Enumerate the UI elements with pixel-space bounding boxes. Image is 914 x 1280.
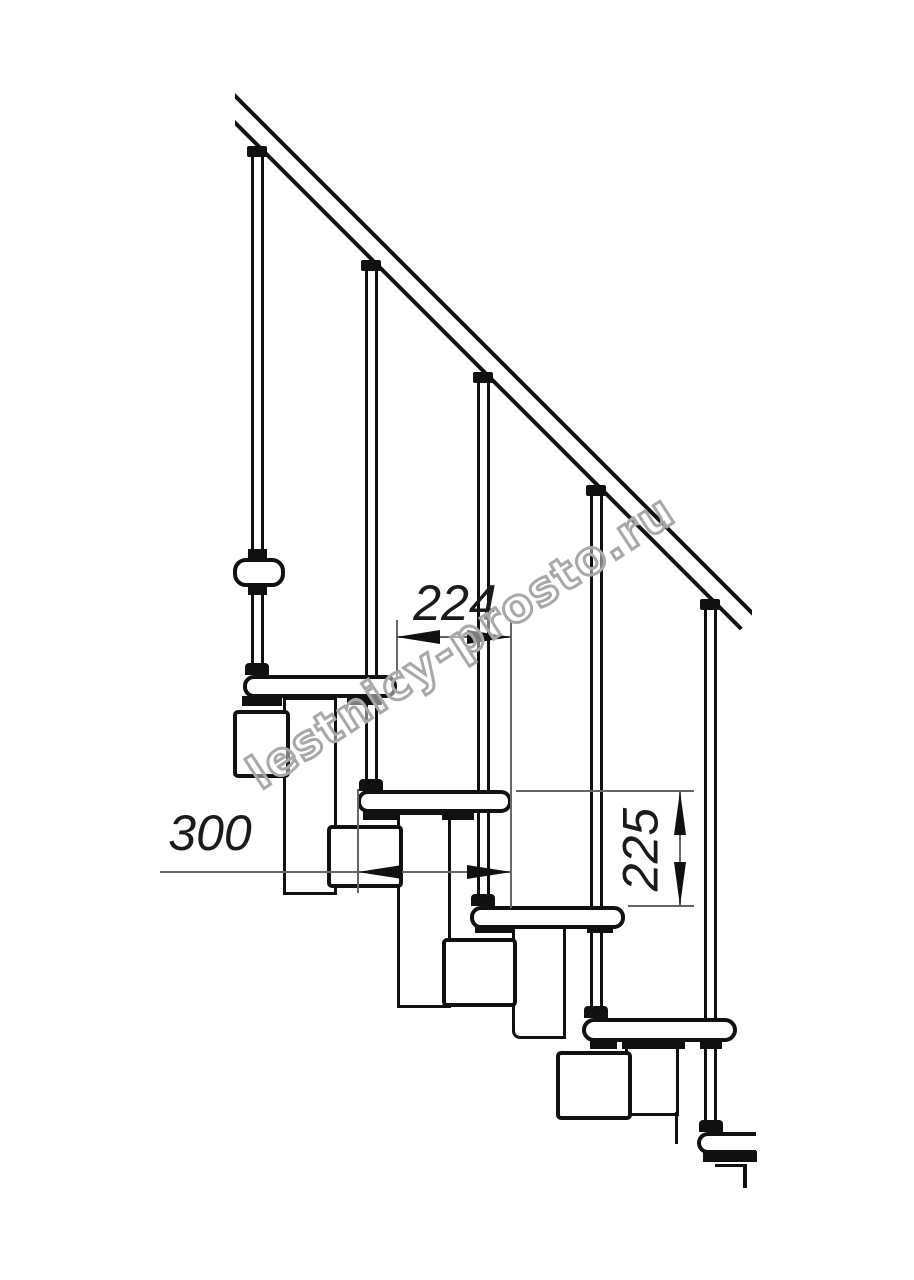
- upper-step-clamp-bottom: [248, 587, 267, 595]
- pass-clamp-step4: [700, 1040, 722, 1049]
- dim-225-label: 225: [614, 795, 669, 905]
- base-connector-3: [471, 894, 495, 906]
- module-box-3: [556, 1051, 632, 1120]
- dim-225-arrow-down: [674, 862, 686, 906]
- dim-300-line: [160, 871, 512, 873]
- module-clamp-step4-left: [590, 1040, 617, 1049]
- base-connector-4: [584, 1006, 608, 1018]
- handrail-end-cut: [752, 585, 822, 655]
- module-clamp-step2: [363, 812, 397, 820]
- rail-connector-5: [700, 599, 720, 610]
- step-4: [582, 1018, 737, 1042]
- module-tube-4: [625, 1042, 679, 1116]
- module-tube-3: [512, 925, 566, 1039]
- staircase-technical-drawing: 224 300 225 lestnicy-prosto.ru: [0, 0, 914, 1280]
- step-2: [357, 790, 512, 813]
- dim-225-arrow-up: [674, 791, 686, 835]
- dim-300-arrow-right: [467, 865, 511, 879]
- watermark: lestnicy-prosto.ru: [232, 482, 680, 809]
- module-clamp-step5: [703, 1151, 757, 1162]
- rail-connector-4: [586, 485, 606, 496]
- rail-connector-3: [473, 372, 493, 383]
- base-connector-1: [245, 663, 269, 675]
- upper-step-fragment: [233, 558, 285, 587]
- module-clamp-step1: [242, 696, 282, 706]
- module-box-2: [442, 938, 517, 1007]
- rail-connector-2: [361, 260, 381, 271]
- base-connector-2: [359, 779, 383, 791]
- module-tube-4-cut-line: [675, 1112, 678, 1144]
- break-line-horizontal: [715, 1164, 744, 1167]
- pass-clamp-step2: [442, 812, 474, 820]
- dim-300-label: 300: [160, 804, 260, 862]
- dim-300-arrow-left: [358, 865, 402, 879]
- base-connector-5: [699, 1120, 723, 1132]
- dim-225-extension-top: [516, 790, 694, 792]
- module-clamp-step3: [475, 925, 512, 933]
- pass-clamp-step3: [587, 925, 613, 933]
- break-line-vertical: [743, 1164, 747, 1188]
- upper-step-clamp-top: [248, 549, 267, 558]
- module-clamp-step4: [622, 1041, 685, 1049]
- rail-connector-1: [247, 146, 267, 157]
- handrail-start-cut: [150, 70, 235, 150]
